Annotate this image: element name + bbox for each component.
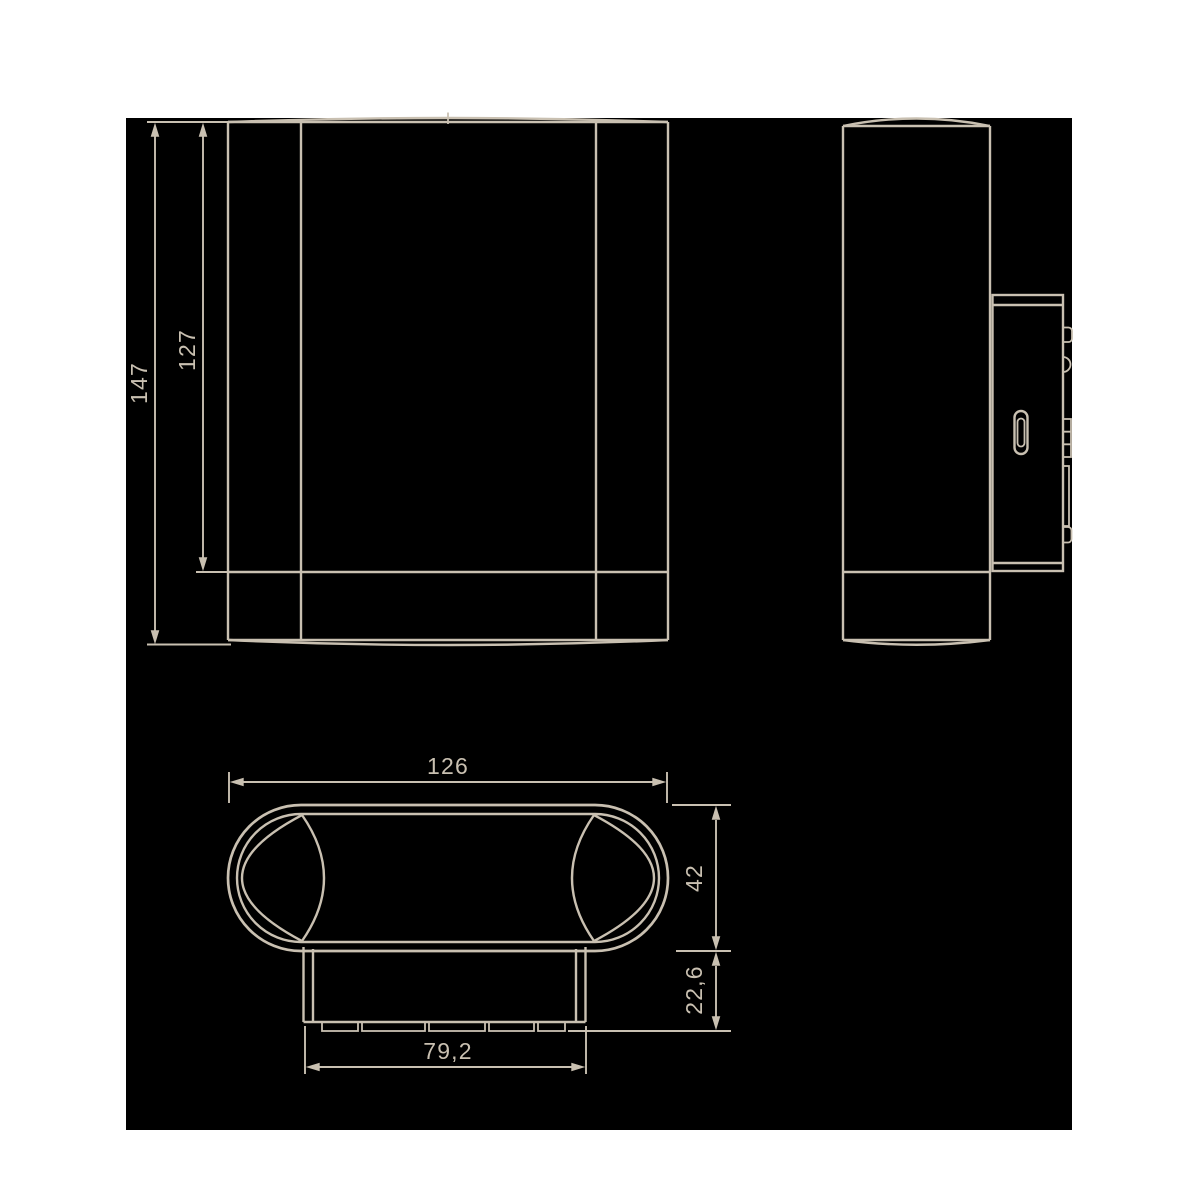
dim-body-diameter-label: 42 — [681, 864, 707, 892]
dim-total-height-label: 147 — [126, 362, 152, 404]
dimension-drawing: 147 127 126 42 22,6 — [0, 0, 1200, 1200]
dim-mount-depth-label: 22,6 — [681, 965, 707, 1015]
dim-mount-width-label: 79,2 — [423, 1038, 473, 1064]
dim-total-width-label: 126 — [427, 753, 469, 779]
technical-drawing-page: 147 127 126 42 22,6 — [0, 0, 1200, 1200]
dim-body-height-label: 127 — [174, 329, 200, 371]
drawing-canvas — [126, 118, 1072, 1130]
